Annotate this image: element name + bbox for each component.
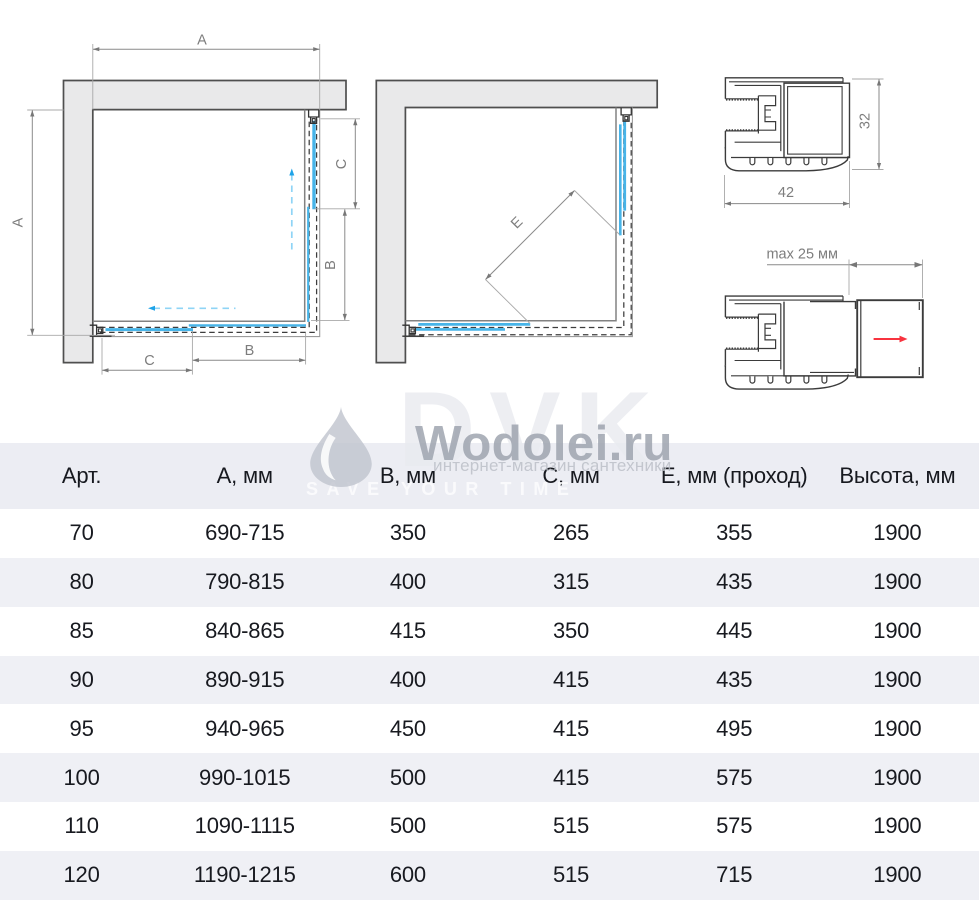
svg-text:E: E [508, 214, 526, 232]
svg-text:42: 42 [778, 185, 794, 201]
svg-text:A: A [197, 33, 207, 49]
svg-text:max 25 мм: max 25 мм [766, 247, 838, 263]
svg-text:32: 32 [858, 113, 874, 129]
svg-text:B: B [323, 260, 339, 270]
svg-text:C: C [334, 159, 350, 169]
svg-text:C: C [144, 353, 154, 369]
svg-text:A: A [11, 217, 27, 227]
svg-text:B: B [245, 343, 255, 359]
